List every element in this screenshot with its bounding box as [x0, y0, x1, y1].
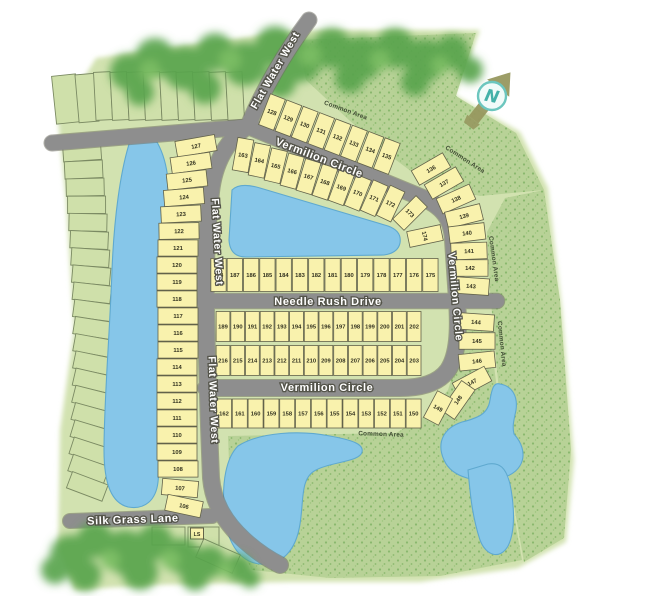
lot-180: 180: [341, 259, 356, 292]
lot-114: 114: [157, 359, 197, 375]
svg-text:125: 125: [182, 177, 193, 184]
svg-text:162: 162: [219, 412, 229, 418]
lot-120: 120: [157, 257, 197, 273]
adjacent-lot: [69, 213, 107, 231]
lot-175: 175: [423, 259, 438, 292]
lot-113: 113: [157, 376, 197, 392]
lot-155: 155: [327, 399, 342, 428]
lot-205: 205: [378, 346, 392, 376]
lot-124: 124: [163, 187, 204, 206]
lot-116: 116: [158, 325, 198, 341]
svg-text:122: 122: [174, 229, 184, 235]
lot-156: 156: [311, 399, 326, 428]
svg-text:185: 185: [263, 273, 273, 279]
svg-text:156: 156: [314, 412, 324, 418]
svg-text:181: 181: [328, 273, 338, 279]
svg-text:201: 201: [395, 325, 405, 331]
svg-text:107: 107: [175, 486, 185, 493]
svg-text:200: 200: [380, 325, 390, 331]
svg-text:121: 121: [173, 246, 183, 252]
svg-text:159: 159: [267, 412, 277, 418]
svg-text:180: 180: [344, 273, 354, 279]
svg-text:151: 151: [393, 412, 403, 418]
adjacent-lot: [71, 248, 110, 268]
lot-193: 193: [275, 312, 289, 342]
lot-198: 198: [348, 312, 362, 342]
svg-text:196: 196: [321, 325, 331, 331]
svg-text:191: 191: [248, 325, 258, 331]
svg-text:108: 108: [173, 467, 183, 473]
svg-text:216: 216: [218, 359, 228, 365]
lot-118: 118: [157, 291, 197, 307]
svg-text:113: 113: [172, 382, 182, 388]
svg-text:209: 209: [321, 359, 331, 365]
lot-182: 182: [309, 259, 324, 292]
lot-185: 185: [260, 259, 275, 292]
lot-202: 202: [407, 312, 421, 342]
svg-text:140: 140: [462, 231, 472, 238]
lot-213: 213: [260, 346, 274, 376]
lot-214: 214: [246, 346, 260, 376]
lot-194: 194: [290, 312, 304, 342]
svg-text:187: 187: [230, 273, 240, 279]
lot-178: 178: [374, 259, 389, 292]
site-plan-svg: 1271261251241231221211201191181171161151…: [0, 0, 650, 596]
lot-207: 207: [348, 346, 362, 376]
adjacent-lot: [64, 160, 103, 179]
lot-112: 112: [157, 393, 197, 409]
lot-159: 159: [264, 399, 279, 428]
lot-181: 181: [325, 259, 340, 292]
svg-text:145: 145: [472, 339, 482, 345]
lot-109: 109: [157, 444, 197, 460]
svg-text:114: 114: [172, 365, 182, 371]
svg-text:144: 144: [471, 320, 482, 327]
svg-text:115: 115: [173, 348, 183, 354]
lot-153: 153: [359, 399, 374, 428]
lot-151: 151: [390, 399, 405, 428]
lot-189: 189: [216, 312, 230, 342]
svg-text:199: 199: [365, 325, 375, 331]
svg-text:182: 182: [311, 273, 321, 279]
lot-209: 209: [319, 346, 333, 376]
svg-text:158: 158: [282, 412, 292, 418]
lot-183: 183: [292, 259, 307, 292]
svg-text:177: 177: [393, 273, 403, 279]
lot-160: 160: [248, 399, 263, 428]
lot-179: 179: [358, 259, 373, 292]
svg-text:118: 118: [172, 297, 182, 303]
svg-text:195: 195: [306, 325, 316, 331]
lot-200: 200: [378, 312, 392, 342]
svg-text:150: 150: [409, 412, 419, 418]
lot-110: 110: [157, 427, 197, 443]
adjacent-lot: [94, 72, 113, 121]
lot-208: 208: [334, 346, 348, 376]
svg-text:210: 210: [306, 359, 316, 365]
svg-text:176: 176: [409, 273, 419, 279]
label-needle-rush-drive: Needle Rush Drive: [274, 296, 381, 308]
svg-text:178: 178: [377, 273, 387, 279]
svg-text:123: 123: [176, 212, 187, 219]
svg-text:212: 212: [277, 359, 287, 365]
lift-station: LS: [191, 528, 204, 539]
lot-197: 197: [334, 312, 348, 342]
label-vermilion-circle-lower: Vermilion Circle: [281, 382, 374, 394]
lot-191: 191: [246, 312, 260, 342]
svg-text:215: 215: [233, 359, 243, 365]
svg-text:142: 142: [465, 266, 475, 272]
lot-121: 121: [158, 240, 198, 256]
lot-108: 108: [158, 461, 198, 477]
svg-text:205: 205: [380, 359, 390, 365]
svg-text:192: 192: [262, 325, 272, 331]
svg-text:189: 189: [218, 325, 228, 331]
svg-text:194: 194: [292, 325, 302, 331]
lot-176: 176: [406, 259, 421, 292]
svg-text:112: 112: [172, 399, 181, 405]
lot-111: 111: [157, 410, 197, 426]
lot-154: 154: [343, 399, 358, 428]
lot-187: 187: [227, 259, 242, 292]
lot-123: 123: [161, 205, 202, 223]
lot-192: 192: [260, 312, 274, 342]
lot-119: 119: [157, 274, 197, 290]
lot-186: 186: [243, 259, 258, 292]
svg-text:211: 211: [292, 359, 302, 365]
lot-196: 196: [319, 312, 333, 342]
lot-115: 115: [158, 342, 198, 358]
svg-text:146: 146: [472, 359, 483, 366]
svg-text:208: 208: [336, 359, 346, 365]
lot-107: 107: [161, 478, 198, 497]
lot-190: 190: [231, 312, 245, 342]
lot-146: 146: [458, 351, 496, 371]
adjacent-lot: [70, 230, 109, 249]
svg-text:204: 204: [395, 359, 405, 365]
svg-text:214: 214: [248, 359, 258, 365]
svg-text:175: 175: [426, 273, 436, 279]
svg-text:143: 143: [466, 284, 477, 291]
svg-text:124: 124: [179, 195, 190, 202]
svg-text:206: 206: [365, 359, 375, 365]
lift-station-label: LS: [194, 532, 201, 538]
svg-text:111: 111: [172, 416, 182, 422]
svg-text:193: 193: [277, 325, 287, 331]
lot-150: 150: [406, 399, 421, 428]
svg-text:179: 179: [360, 273, 370, 279]
svg-text:155: 155: [330, 412, 340, 418]
svg-text:120: 120: [172, 263, 182, 269]
lot-161: 161: [232, 399, 247, 428]
lot-195: 195: [304, 312, 318, 342]
svg-text:213: 213: [262, 359, 272, 365]
site-plan-map: 1271261251241231221211201191181171161151…: [0, 0, 650, 596]
lot-184: 184: [276, 259, 291, 292]
svg-text:141: 141: [464, 249, 475, 255]
svg-text:109: 109: [172, 450, 182, 456]
lot-201: 201: [393, 312, 407, 342]
lot-122: 122: [159, 223, 199, 240]
lot-158: 158: [280, 399, 295, 428]
svg-text:119: 119: [172, 280, 182, 286]
svg-text:190: 190: [233, 325, 243, 331]
lot-211: 211: [290, 346, 304, 376]
svg-text:157: 157: [298, 412, 308, 418]
svg-text:198: 198: [350, 325, 360, 331]
lot-152: 152: [375, 399, 390, 428]
lot-203: 203: [407, 346, 421, 376]
lot-177: 177: [390, 259, 405, 292]
svg-text:207: 207: [350, 359, 360, 365]
lot-199: 199: [363, 312, 377, 342]
lot-210: 210: [304, 346, 318, 376]
svg-text:202: 202: [409, 325, 419, 331]
adjacent-lot: [66, 178, 104, 196]
svg-text:197: 197: [336, 325, 346, 331]
svg-text:203: 203: [409, 359, 419, 365]
svg-text:183: 183: [295, 273, 305, 279]
lot-206: 206: [363, 346, 377, 376]
svg-text:110: 110: [172, 433, 181, 439]
lot-157: 157: [296, 399, 311, 428]
svg-text:153: 153: [361, 412, 371, 418]
lot-204: 204: [393, 346, 407, 376]
lot-212: 212: [275, 346, 289, 376]
svg-text:160: 160: [251, 412, 261, 418]
svg-text:154: 154: [346, 412, 356, 418]
svg-text:184: 184: [279, 273, 289, 279]
svg-text:186: 186: [246, 273, 256, 279]
lot-215: 215: [231, 346, 245, 376]
lot-117: 117: [158, 308, 198, 324]
svg-text:116: 116: [173, 331, 183, 337]
svg-text:117: 117: [173, 314, 182, 320]
svg-text:161: 161: [235, 412, 245, 418]
svg-text:152: 152: [377, 412, 387, 418]
adjacent-lot: [68, 196, 106, 213]
